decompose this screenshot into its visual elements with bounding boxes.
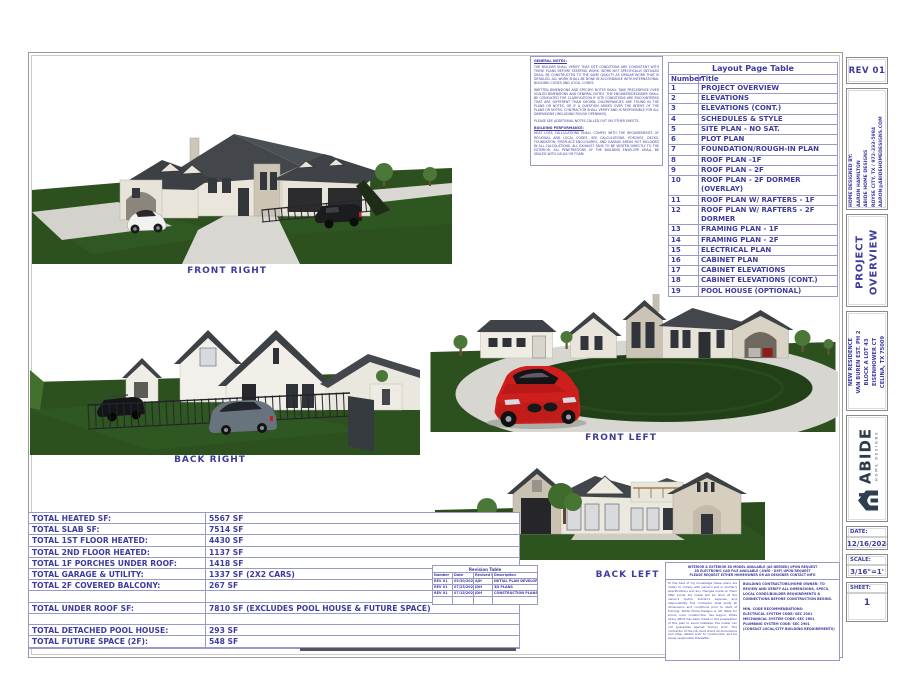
sf-label: TOTAL 2F COVERED BALCONY: [29, 580, 206, 590]
revision-table-title: Revision Table [433, 566, 537, 573]
column-header-description: Description [493, 573, 537, 578]
sheet-number-box: SHEET: 1 [846, 582, 888, 622]
sf-value: 5567 SF [206, 513, 519, 523]
layout-table-row: 19POOL HOUSE (OPTIONAL) [669, 287, 837, 296]
page-number: 10 [669, 176, 699, 194]
layout-table-row: 2ELEVATIONS [669, 94, 837, 104]
layout-table-row: 3ELEVATIONS (CONT.) [669, 104, 837, 114]
sf-label: TOTAL 1ST FLOOR HEATED: [29, 535, 206, 545]
page-number: 9 [669, 166, 699, 175]
page-title: SITE PLAN - NO SAT. [699, 125, 837, 134]
sf-value: 548 SF [206, 636, 519, 647]
logo-subtitle-text: HOME DESIGNS [874, 430, 878, 480]
layout-table-row: 14FRAMING PLAN - 2F [669, 236, 837, 246]
label-front-right: FRONT RIGHT [32, 266, 422, 276]
revision-row [433, 597, 537, 604]
page-number: 8 [669, 156, 699, 165]
column-header-revised-by: Revised By [474, 573, 493, 578]
logo-brand-text: ABIDE [856, 427, 874, 483]
date-value: 12/16/2024 [847, 538, 887, 548]
revision-cell: 05/30/2024 [453, 579, 474, 584]
sf-value: 1137 SF [206, 547, 519, 557]
availability-line: PLEASE REQUEST EITHER HOMEOWNER OR AN DE… [668, 573, 837, 577]
page-number: 3 [669, 104, 699, 113]
sheet-title-box: PROJECT OVERVIEW [846, 214, 888, 307]
page-number: 6 [669, 135, 699, 144]
page-number: 12 [669, 206, 699, 224]
page-number: 17 [669, 266, 699, 275]
revision-cell: JDH [474, 591, 493, 596]
date-label: DATE: [847, 527, 887, 538]
sf-value: 4430 SF [206, 535, 519, 545]
label-back-right: BACK RIGHT [30, 455, 390, 465]
page-number: 1 [669, 84, 699, 93]
layout-table-row: 4SCHEDULES & STYLE [669, 115, 837, 125]
scale-value: 3/16"=1' [847, 566, 887, 576]
front-right-illustration [32, 64, 452, 264]
sf-label [29, 591, 206, 601]
revision-number-box: REV 01 [846, 57, 888, 84]
page-title: ROOF PLAN W/ RAFTERS - 2F DORMER [699, 206, 837, 224]
page-number: 19 [669, 287, 699, 296]
page-title: ELEVATIONS (CONT.) [699, 104, 837, 113]
general-notes: GENERAL NOTES: THE BUILDER SHALL VERIFY … [530, 56, 663, 166]
layout-page-table-rows: 1PROJECT OVERVIEW2ELEVATIONS3ELEVATIONS … [669, 84, 837, 296]
project-info-box: NEW RESIDENCE VAN BUREN EST. PH 2 BLOCK … [846, 311, 888, 411]
page-title: ROOF PLAN W/ RAFTERS - 1F [699, 196, 837, 205]
date-box: DATE: 12/16/2024 [846, 526, 888, 550]
layout-table-row: 15ELECTRICAL PLAN [669, 246, 837, 256]
layout-page-table-title: Layout Page Table [669, 63, 837, 75]
project-line: NEW RESIDENCE [847, 338, 855, 386]
layout-table-row: 1PROJECT OVERVIEW [669, 84, 837, 94]
sheet-title-line: OVERVIEW [867, 228, 882, 294]
building-performance-paragraph: HEAT LOSS CALCULATIONS SHALL COMPLY WITH… [534, 131, 659, 156]
revision-cell: 07/23/2024 [453, 585, 474, 590]
page-number: 13 [669, 225, 699, 234]
revision-cell [493, 597, 537, 604]
sf-table-row: TOTAL 2ND FLOOR HEATED:1137 SF [29, 547, 519, 558]
layout-table-row: 12ROOF PLAN W/ RAFTERS - 2F DORMER [669, 206, 837, 225]
layout-table-row: 9ROOF PLAN - 2F [669, 166, 837, 176]
page-number: 15 [669, 246, 699, 255]
column-header-number: Number [669, 75, 699, 83]
designer-line: ABIDE HOME DESIGNS [863, 91, 870, 207]
designer-line: ROYSE CITY, TX / 972-333-5984 [871, 91, 878, 207]
general-notes-paragraph: PLEASE SEE ADDITIONAL NOTES CALLED OUT O… [534, 119, 659, 123]
page-number: 14 [669, 236, 699, 245]
sf-table-row: TOTAL 1ST FLOOR HEATED:4430 SF [29, 535, 519, 546]
sheet-title-line: PROJECT [853, 235, 868, 289]
page-number: 7 [669, 145, 699, 154]
code-line: (CONSULT LOCAL/CITY BUILDING REQUIREMENT… [743, 627, 836, 632]
page-number: 4 [669, 115, 699, 124]
page-title: PROJECT OVERVIEW [699, 84, 837, 93]
page-number: 16 [669, 256, 699, 265]
layout-table-row: 17CABINET ELEVATIONS [669, 266, 837, 276]
revision-cell [433, 597, 453, 604]
revision-table-rows: REV 0105/30/2024AJHINITIAL PLAN DEVELOPM… [433, 579, 537, 604]
page-number: 18 [669, 276, 699, 285]
back-right-illustration [30, 290, 420, 455]
layout-page-table: Layout Page Table Number Title 1PROJECT … [668, 62, 838, 297]
scale-label: SCALE: [847, 555, 887, 566]
bottom-notes: INTERIOR & EXTERIOR 3D MODEL AVAILABLE (… [665, 562, 840, 661]
gray-sedan [209, 400, 277, 435]
project-line: EISENHOWER CT [871, 338, 879, 386]
layout-table-row: 7FOUNDATION/ROUGH-IN PLAN [669, 145, 837, 155]
plan-sheet: FRONT RIGHT [0, 0, 900, 693]
house [566, 294, 794, 358]
sheet-number-value: 1 [847, 594, 887, 608]
sf-table-row: TOTAL SLAB SF:7514 SF [29, 524, 519, 535]
column-header-number: Number [433, 573, 453, 578]
revision-cell: 07/15/2024 [453, 591, 474, 596]
page-title: POOL HOUSE (OPTIONAL) [699, 287, 837, 296]
revision-number: REV 01 [849, 66, 886, 76]
availability-notes: INTERIOR & EXTERIOR 3D MODEL AVAILABLE (… [666, 563, 839, 580]
sf-label: TOTAL GARAGE & UTILITY: [29, 569, 206, 579]
project-line: CELINA, TX 75009 [879, 336, 887, 388]
column-header-title: Title [699, 75, 837, 83]
designer-line: AARON HAMILTON [856, 91, 863, 207]
logo-box: ABIDE HOME DESIGNS [846, 415, 888, 522]
layout-table-row: 10ROOF PLAN - 2F DORMER (OVERLAY) [669, 176, 837, 195]
revision-cell: AJH [474, 579, 493, 584]
page-title: FOUNDATION/ROUGH-IN PLAN [699, 145, 837, 154]
page-title: ROOF PLAN -1F [699, 156, 837, 165]
revision-cell [453, 597, 474, 604]
sf-label: TOTAL DETACHED POOL HOUSE: [29, 625, 206, 635]
disclaimer-note: To the best of my knowledge these plans … [666, 580, 740, 660]
page-title: CABINET ELEVATIONS (CONT.) [699, 276, 837, 285]
page-title: FRAMING PLAN - 2F [699, 236, 837, 245]
sf-table-end-bar [300, 648, 516, 651]
designer-line: AARON@ABIDEHOMEDESIGNS.COM [878, 91, 885, 207]
page-number: 2 [669, 94, 699, 103]
revision-cell: INITIAL PLAN DEVELOPMENT [493, 579, 537, 584]
sf-value: 293 SF [206, 625, 519, 635]
page-title: CABINET ELEVATIONS [699, 266, 837, 275]
sf-value [206, 614, 519, 624]
general-notes-paragraph: THE BUILDER SHALL VERIFY THAT SITE CONDI… [534, 65, 659, 85]
designer-info-box: HOME DESIGNED BY: AARON HAMILTON ABIDE H… [846, 88, 888, 210]
building-performance-heading: BUILDING PERFORMANCE: [534, 126, 659, 130]
page-title: CABINET PLAN [699, 256, 837, 265]
layout-table-row: 16CABINET PLAN [669, 256, 837, 266]
page-title: SCHEDULES & STYLE [699, 115, 837, 124]
sf-label: TOTAL SLAB SF: [29, 524, 206, 534]
sf-table-row: TOTAL HEATED SF:5567 SF [29, 513, 519, 524]
revision-cell: JDH [474, 585, 493, 590]
column-header-date: Date [453, 573, 474, 578]
sf-table-row: TOTAL DETACHED POOL HOUSE:293 SF [29, 625, 519, 636]
designer-line: HOME DESIGNED BY: [848, 91, 855, 207]
render-front-right [32, 64, 452, 264]
render-back-right [30, 290, 420, 455]
sf-label: TOTAL 2ND FLOOR HEATED: [29, 547, 206, 557]
revision-cell: REV 01 [433, 585, 453, 590]
scale-box: SCALE: 3/16"=1' [846, 554, 888, 578]
sf-label [29, 614, 206, 624]
layout-table-row: 13FRAMING PLAN - 1F [669, 225, 837, 235]
sf-label: TOTAL UNDER ROOF SF: [29, 603, 206, 613]
revision-table: Revision Table Number Date Revised By De… [432, 565, 538, 605]
page-title: ROOF PLAN - 2F DORMER (OVERLAY) [699, 176, 837, 194]
sf-value: 7514 SF [206, 524, 519, 534]
general-notes-heading: GENERAL NOTES: [534, 59, 659, 63]
page-title: ELECTRICAL PLAN [699, 246, 837, 255]
code-requirements-note: BUILDING CONTRACTORS/HOME OWNER: TO REVI… [740, 580, 839, 660]
house [507, 468, 747, 540]
pool-house [477, 320, 557, 358]
layout-table-row: 6PLOT PLAN [669, 135, 837, 145]
general-notes-paragraph: WRITTEN DIMENSIONS AND SPECIFIC NOTES SH… [534, 88, 659, 117]
layout-table-row: 8ROOF PLAN -1F [669, 156, 837, 166]
sf-label: TOTAL HEATED SF: [29, 513, 206, 523]
revision-cell: REV 01 [433, 579, 453, 584]
page-number: 11 [669, 196, 699, 205]
sf-table-row [29, 614, 519, 625]
page-number: 5 [669, 125, 699, 134]
page-title: ROOF PLAN - 2F [699, 166, 837, 175]
layout-page-table-header: Number Title [669, 75, 837, 84]
layout-table-row: 5SITE PLAN - NO SAT. [669, 125, 837, 135]
page-title: FRAMING PLAN - 1F [699, 225, 837, 234]
sf-table-row: TOTAL FUTURE SPACE (2F):548 SF [29, 636, 519, 647]
revision-cell: CONSTRUCTION PLANS [493, 591, 537, 596]
sheet-number-label: SHEET: [847, 583, 887, 594]
revision-cell [474, 597, 493, 604]
revision-cell: REV 01 [433, 591, 453, 596]
project-line: VAN BUREN EST. PH 2 [855, 330, 863, 393]
abide-logo-house-icon [856, 488, 879, 512]
contractor-note: BUILDING CONTRACTORS/HOME OWNER: TO REVI… [743, 582, 836, 602]
layout-table-row: 18CABINET ELEVATIONS (CONT.) [669, 276, 837, 286]
page-title: PLOT PLAN [699, 135, 837, 144]
sf-label: TOTAL FUTURE SPACE (2F): [29, 636, 206, 647]
project-line: BLOCK A LOT 43 [863, 338, 871, 385]
page-title: ELEVATIONS [699, 94, 837, 103]
sf-label: TOTAL 1F PORCHES UNDER ROOF: [29, 558, 206, 568]
layout-table-row: 11ROOF PLAN W/ RAFTERS - 1F [669, 196, 837, 206]
revision-cell: 3D PLANS [493, 585, 537, 590]
